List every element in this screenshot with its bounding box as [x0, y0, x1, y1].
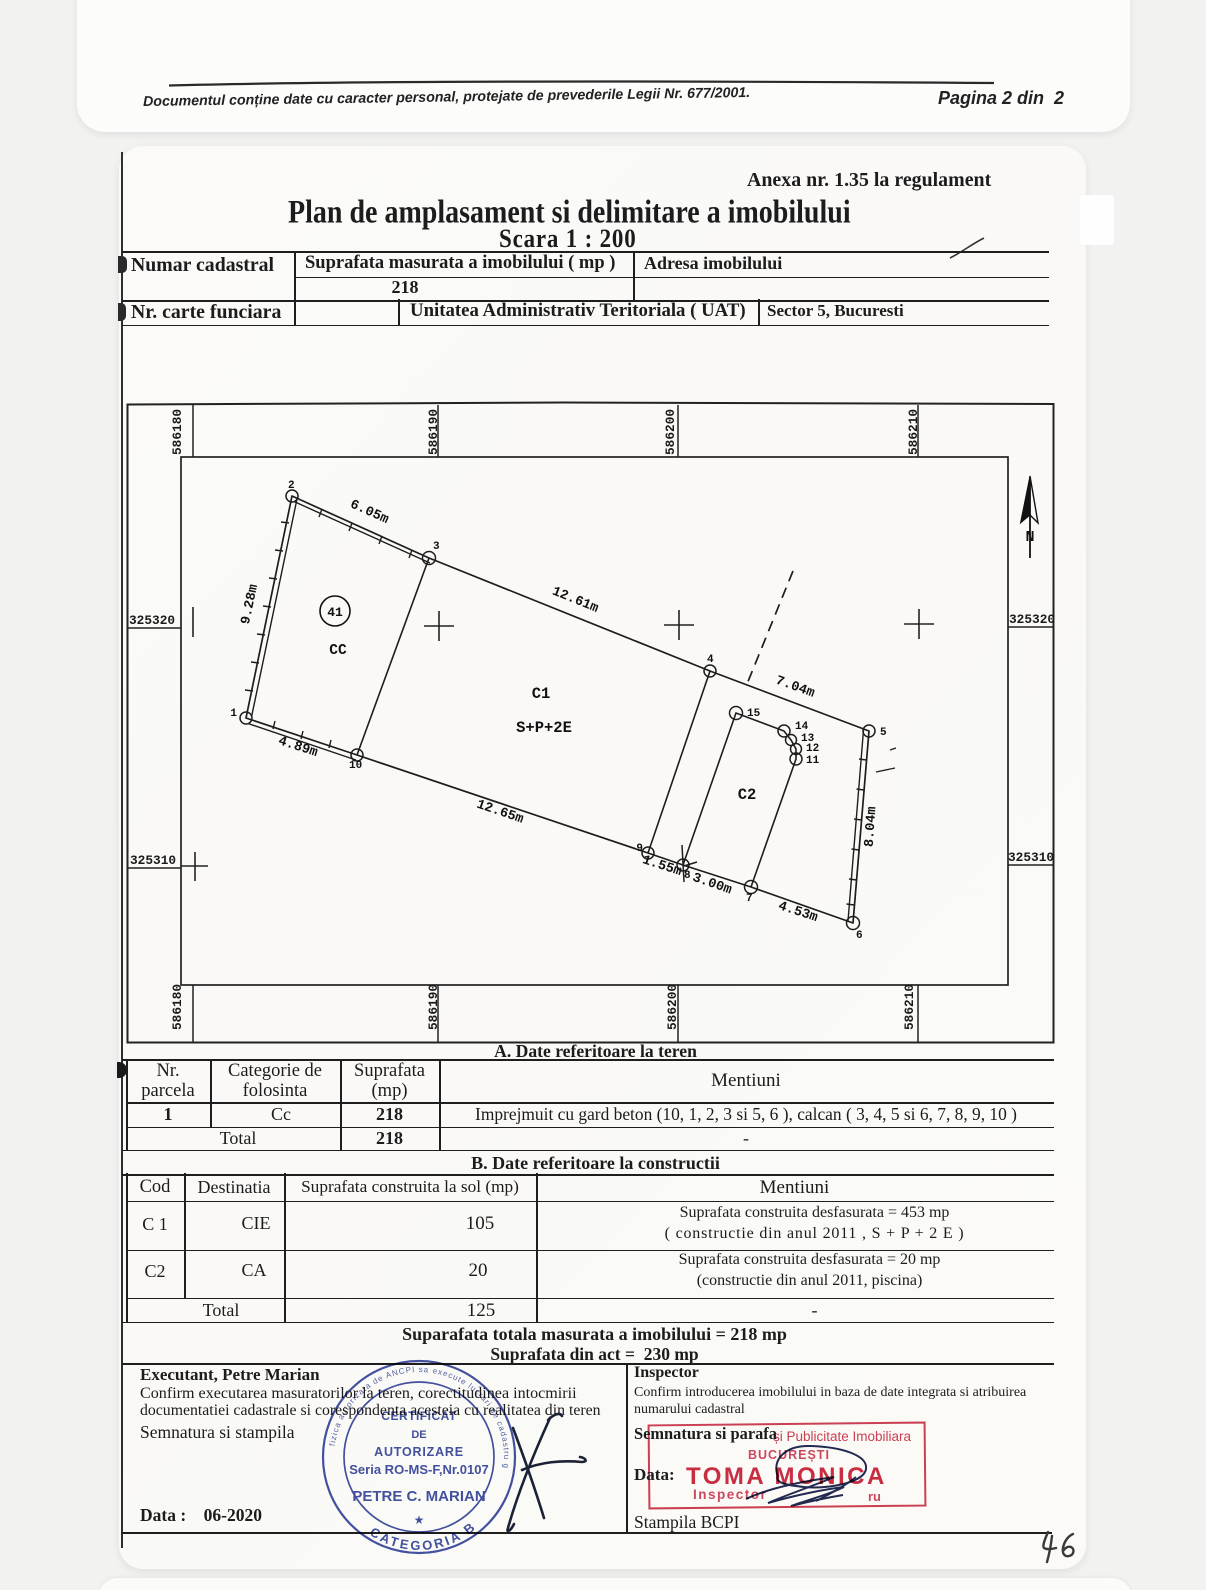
svg-text:586210: 586210 [906, 409, 921, 455]
svg-text:DE: DE [411, 1429, 426, 1441]
svg-text:586200: 586200 [665, 984, 680, 1030]
svg-text:N: N [1025, 529, 1034, 546]
svg-text:PETRE C. MARIAN: PETRE C. MARIAN [352, 1488, 485, 1505]
svg-text:S+P+2E: S+P+2E [516, 719, 572, 737]
svg-text:AUTORIZARE: AUTORIZARE [374, 1445, 464, 1459]
svg-text:12.61m: 12.61m [550, 585, 601, 617]
svg-text:586210: 586210 [902, 984, 917, 1030]
svg-text:4.89m: 4.89m [276, 734, 319, 761]
svg-text:8: 8 [684, 870, 691, 882]
svg-text:4: 4 [707, 654, 714, 666]
svg-text:13: 13 [801, 733, 815, 745]
svg-text:41: 41 [327, 605, 343, 620]
svg-text:3: 3 [433, 541, 440, 553]
svg-text:325320: 325320 [1009, 612, 1055, 627]
svg-text:586190: 586190 [426, 984, 441, 1030]
svg-text:6: 6 [856, 930, 863, 942]
svg-text:11: 11 [806, 755, 820, 767]
svg-text:10: 10 [349, 760, 362, 772]
svg-text:586180: 586180 [170, 984, 185, 1030]
svg-text:C1: C1 [532, 685, 551, 703]
svg-text:5: 5 [880, 727, 887, 739]
svg-text:CERTIFICAT: CERTIFICAT [381, 1409, 457, 1423]
svg-text:14: 14 [795, 721, 809, 733]
svg-text:325310: 325310 [130, 853, 176, 868]
svg-text:2: 2 [288, 480, 295, 492]
svg-text:586200: 586200 [663, 409, 678, 455]
svg-text:★: ★ [414, 1513, 425, 1527]
svg-text:15: 15 [747, 708, 761, 720]
svg-text:325320: 325320 [129, 613, 175, 628]
svg-text:9.28m: 9.28m [239, 583, 262, 626]
svg-text:CC: CC [329, 643, 347, 659]
svg-text:586190: 586190 [426, 409, 441, 455]
svg-text:C2: C2 [738, 786, 757, 804]
svg-text:Seria RO-MS-F,Nr.0107: Seria RO-MS-F,Nr.0107 [349, 1462, 488, 1477]
svg-text:7: 7 [746, 893, 753, 905]
svg-text:12.65m: 12.65m [474, 798, 525, 828]
svg-text:1: 1 [230, 708, 237, 720]
svg-text:9: 9 [636, 843, 643, 855]
svg-text:8.04m: 8.04m [863, 806, 881, 847]
svg-text:325310: 325310 [1008, 850, 1054, 865]
svg-text:586180: 586180 [170, 409, 185, 455]
